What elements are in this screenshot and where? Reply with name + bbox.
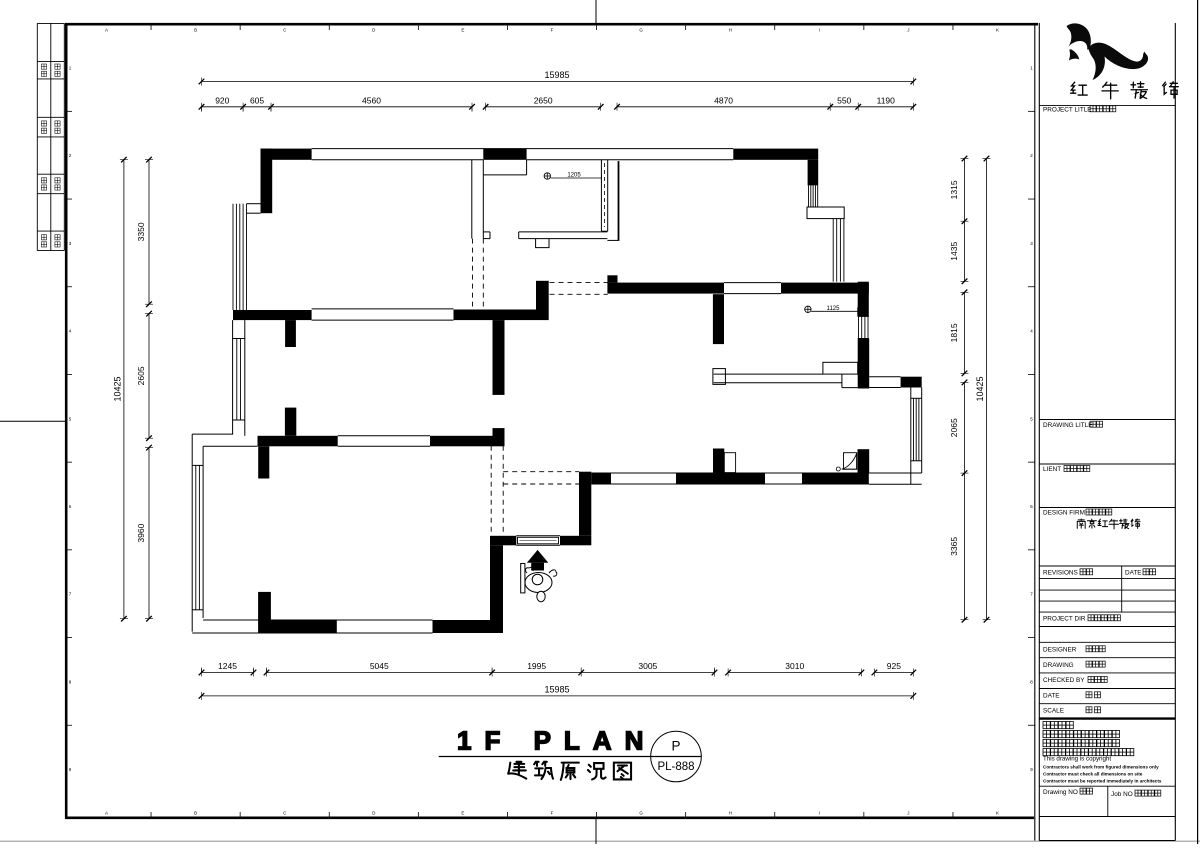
svg-text:1190: 1190 (877, 95, 896, 105)
svg-text:PL-888: PL-888 (657, 761, 694, 773)
svg-text:3005: 3005 (638, 661, 657, 671)
svg-text:J: J (907, 811, 909, 816)
svg-text:REVISIONS: REVISIONS (1043, 570, 1078, 577)
svg-text:1815: 1815 (949, 323, 959, 342)
svg-text:PROJECT LITLE: PROJECT LITLE (1043, 107, 1092, 114)
svg-text:925: 925 (887, 661, 901, 671)
svg-text:Contractor must check all dime: Contractor must check all dimensions on … (1043, 771, 1143, 776)
svg-text:I: I (819, 811, 820, 816)
svg-text:DRAWING LITLE: DRAWING LITLE (1043, 422, 1092, 429)
svg-text:3365: 3365 (949, 537, 959, 556)
svg-text:E: E (461, 811, 464, 816)
svg-text:G: G (639, 28, 643, 33)
svg-text:B: B (194, 28, 197, 33)
svg-text:DESIGNER: DESIGNER (1043, 647, 1077, 654)
svg-text:1245: 1245 (218, 661, 237, 671)
svg-text:H: H (729, 811, 732, 816)
svg-text:2650: 2650 (534, 95, 553, 105)
svg-text:A: A (105, 28, 108, 33)
svg-text:920: 920 (215, 95, 229, 105)
svg-text:This drawing is copyright: This drawing is copyright (1043, 755, 1111, 762)
svg-text:B: B (194, 811, 197, 816)
svg-text:I: I (819, 28, 820, 33)
svg-text:DATE: DATE (1043, 693, 1060, 700)
svg-text:15985: 15985 (544, 685, 569, 695)
svg-text:DATE: DATE (1125, 570, 1142, 577)
svg-text:550: 550 (837, 95, 851, 105)
svg-text:A: A (105, 811, 108, 816)
svg-text:DESIGN FIRM: DESIGN FIRM (1043, 510, 1085, 517)
svg-text:1F PLAN: 1F PLAN (457, 725, 656, 755)
svg-text:2605: 2605 (136, 366, 146, 385)
svg-text:F: F (551, 28, 554, 33)
svg-text:605: 605 (250, 95, 264, 105)
svg-text:P: P (671, 739, 680, 754)
svg-text:PROJECT DIR: PROJECT DIR (1043, 616, 1086, 623)
svg-text:1315: 1315 (949, 180, 959, 199)
svg-text:J: J (907, 28, 909, 33)
svg-text:Contractors shall work from fi: Contractors shall work from figured dime… (1043, 764, 1159, 769)
svg-text:3960: 3960 (136, 523, 146, 542)
svg-text:CHECKED BY: CHECKED BY (1043, 677, 1085, 684)
svg-text:1995: 1995 (527, 661, 546, 671)
svg-text:Drawing NO: Drawing NO (1043, 789, 1078, 796)
svg-text:10425: 10425 (113, 376, 123, 401)
svg-text:4870: 4870 (714, 95, 733, 105)
svg-text:4560: 4560 (362, 95, 381, 105)
svg-text:Job NO: Job NO (1111, 791, 1133, 798)
svg-text:F: F (551, 811, 554, 816)
svg-text:3350: 3350 (136, 222, 146, 241)
svg-text:1125: 1125 (827, 306, 841, 312)
svg-text:LIENT: LIENT (1043, 466, 1061, 473)
svg-text:2065: 2065 (949, 418, 959, 437)
svg-text:10425: 10425 (975, 376, 985, 401)
svg-text:5045: 5045 (370, 661, 389, 671)
svg-text:K: K (996, 28, 999, 33)
svg-text:1435: 1435 (949, 242, 959, 261)
svg-text:H: H (729, 28, 732, 33)
svg-text:SCALE: SCALE (1043, 708, 1064, 715)
svg-text:3010: 3010 (785, 661, 804, 671)
svg-text:15985: 15985 (544, 70, 569, 80)
svg-text:E: E (461, 28, 464, 33)
svg-text:1205: 1205 (567, 173, 581, 179)
svg-text:DRAWING: DRAWING (1043, 662, 1074, 669)
svg-text:Contractor must be reported im: Contractor must be reported immediately … (1043, 778, 1162, 783)
svg-text:G: G (639, 811, 643, 816)
svg-text:K: K (996, 811, 999, 816)
